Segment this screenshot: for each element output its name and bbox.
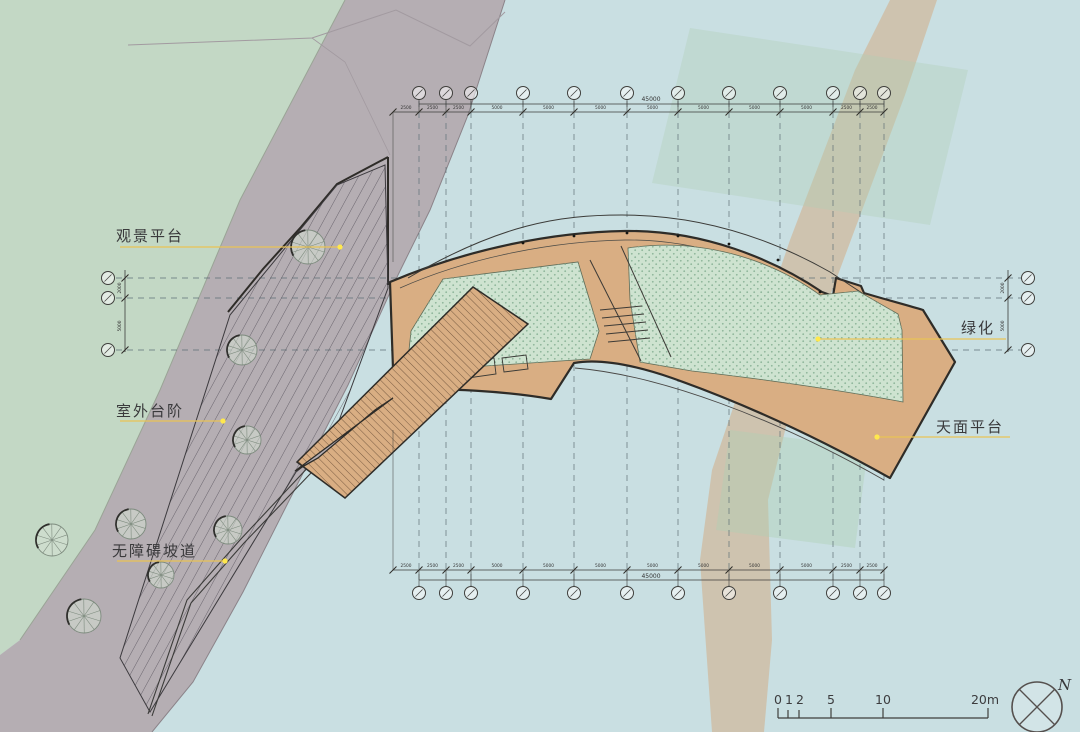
grid-bubble <box>413 87 426 100</box>
scale-tick-5: 5 <box>827 692 835 707</box>
dim-segment-value: 2500 <box>867 105 878 111</box>
roof-platform-dot <box>874 434 879 439</box>
tree-icon <box>67 599 101 633</box>
grid-bubble <box>465 87 478 100</box>
dim-segment-value: 2500 <box>401 105 412 111</box>
dim-segment-value: 2500 <box>841 105 852 111</box>
greening-dot <box>815 336 820 341</box>
bottom-total-dim: 45000 <box>641 573 660 580</box>
grid-bubble <box>1022 292 1035 305</box>
grid-bubble <box>827 87 840 100</box>
label-outdoor-steps: 室外台阶 <box>116 402 184 420</box>
scale-tick-2: 2 <box>796 692 804 707</box>
dim-segment-value: 2500 <box>453 105 464 111</box>
grid-bubble <box>827 587 840 600</box>
dim-segment-value: 5000 <box>698 563 709 569</box>
grid-bubble <box>1022 344 1035 357</box>
tree-icon <box>233 426 261 454</box>
tree-icon <box>227 335 257 365</box>
scale-tick-1: 1 <box>785 692 793 707</box>
grid-bubble <box>102 344 115 357</box>
grid-bubble <box>878 87 891 100</box>
dim-segment-value: 5000 <box>543 105 554 111</box>
ramp-dot <box>222 558 227 563</box>
site-plan-drawing: 2500250025005000500050005000500050005000… <box>0 0 1080 732</box>
dim-segment-value: 5000 <box>749 105 760 111</box>
grid-bubble <box>723 587 736 600</box>
scale-tick-20m: 20m <box>971 692 999 707</box>
grid-bubble <box>621 87 634 100</box>
dim-segment-value: 2000 <box>117 282 123 293</box>
grid-bubble <box>568 87 581 100</box>
grid-bubble <box>413 587 426 600</box>
viewing-platform-dot <box>337 244 342 249</box>
dim-segment-value: 2500 <box>841 563 852 569</box>
grid-bubble <box>440 87 453 100</box>
dim-segment-value: 2500 <box>427 563 438 569</box>
dim-segment-value: 5000 <box>698 105 709 111</box>
grid-bubble <box>774 87 787 100</box>
tree-icon <box>214 516 242 544</box>
dim-segment-value: 5000 <box>543 563 554 569</box>
label-viewing-platform: 观景平台 <box>116 227 184 245</box>
grid-bubble <box>854 87 867 100</box>
grid-bubble <box>517 587 530 600</box>
dim-segment-value: 5000 <box>595 563 606 569</box>
grid-bubble <box>440 587 453 600</box>
dim-segment-value: 5000 <box>492 105 503 111</box>
grid-bubble <box>774 587 787 600</box>
dim-segment-value: 2000 <box>1000 282 1006 293</box>
tree-icon <box>116 509 146 539</box>
grid-bubble <box>672 87 685 100</box>
dim-segment-value: 5000 <box>647 105 658 111</box>
dim-segment-value: 5000 <box>647 563 658 569</box>
scale-tick-10: 10 <box>875 692 891 707</box>
site-plan-canvas: 2500250025005000500050005000500050005000… <box>0 0 1080 732</box>
outdoor-steps-dot <box>220 418 225 423</box>
dim-segment-value: 5000 <box>595 105 606 111</box>
dim-segment-value: 5000 <box>492 563 503 569</box>
dim-segment-value: 2500 <box>401 563 412 569</box>
tree-icon <box>36 524 68 556</box>
dim-segment-value: 5000 <box>117 320 123 331</box>
dim-segment-value: 2500 <box>867 563 878 569</box>
label-barrier-free-ramp: 无障碍坡道 <box>112 542 197 560</box>
dim-segment-value: 2500 <box>453 563 464 569</box>
dim-segment-value: 2500 <box>427 105 438 111</box>
grid-bubble <box>102 272 115 285</box>
grid-bubble <box>517 87 530 100</box>
top-total-dim: 45000 <box>641 96 660 103</box>
label-greening: 绿化 <box>961 319 995 337</box>
dim-segment-value: 5000 <box>1000 320 1006 331</box>
grid-bubble <box>1022 272 1035 285</box>
dim-segment-value: 5000 <box>749 563 760 569</box>
grid-bubble <box>102 292 115 305</box>
tree-icon <box>148 562 174 588</box>
scale-tick-0: 0 <box>774 692 782 707</box>
north-label: N <box>1057 676 1072 694</box>
grid-bubble <box>568 587 581 600</box>
grid-bubble <box>672 587 685 600</box>
grid-bubble <box>465 587 478 600</box>
grid-bubble <box>621 587 634 600</box>
grid-bubble <box>723 87 736 100</box>
label-roof-platform: 天面平台 <box>936 418 1004 436</box>
grid-bubble <box>878 587 891 600</box>
dim-segment-value: 5000 <box>801 563 812 569</box>
dim-segment-value: 5000 <box>801 105 812 111</box>
grid-bubble <box>854 587 867 600</box>
